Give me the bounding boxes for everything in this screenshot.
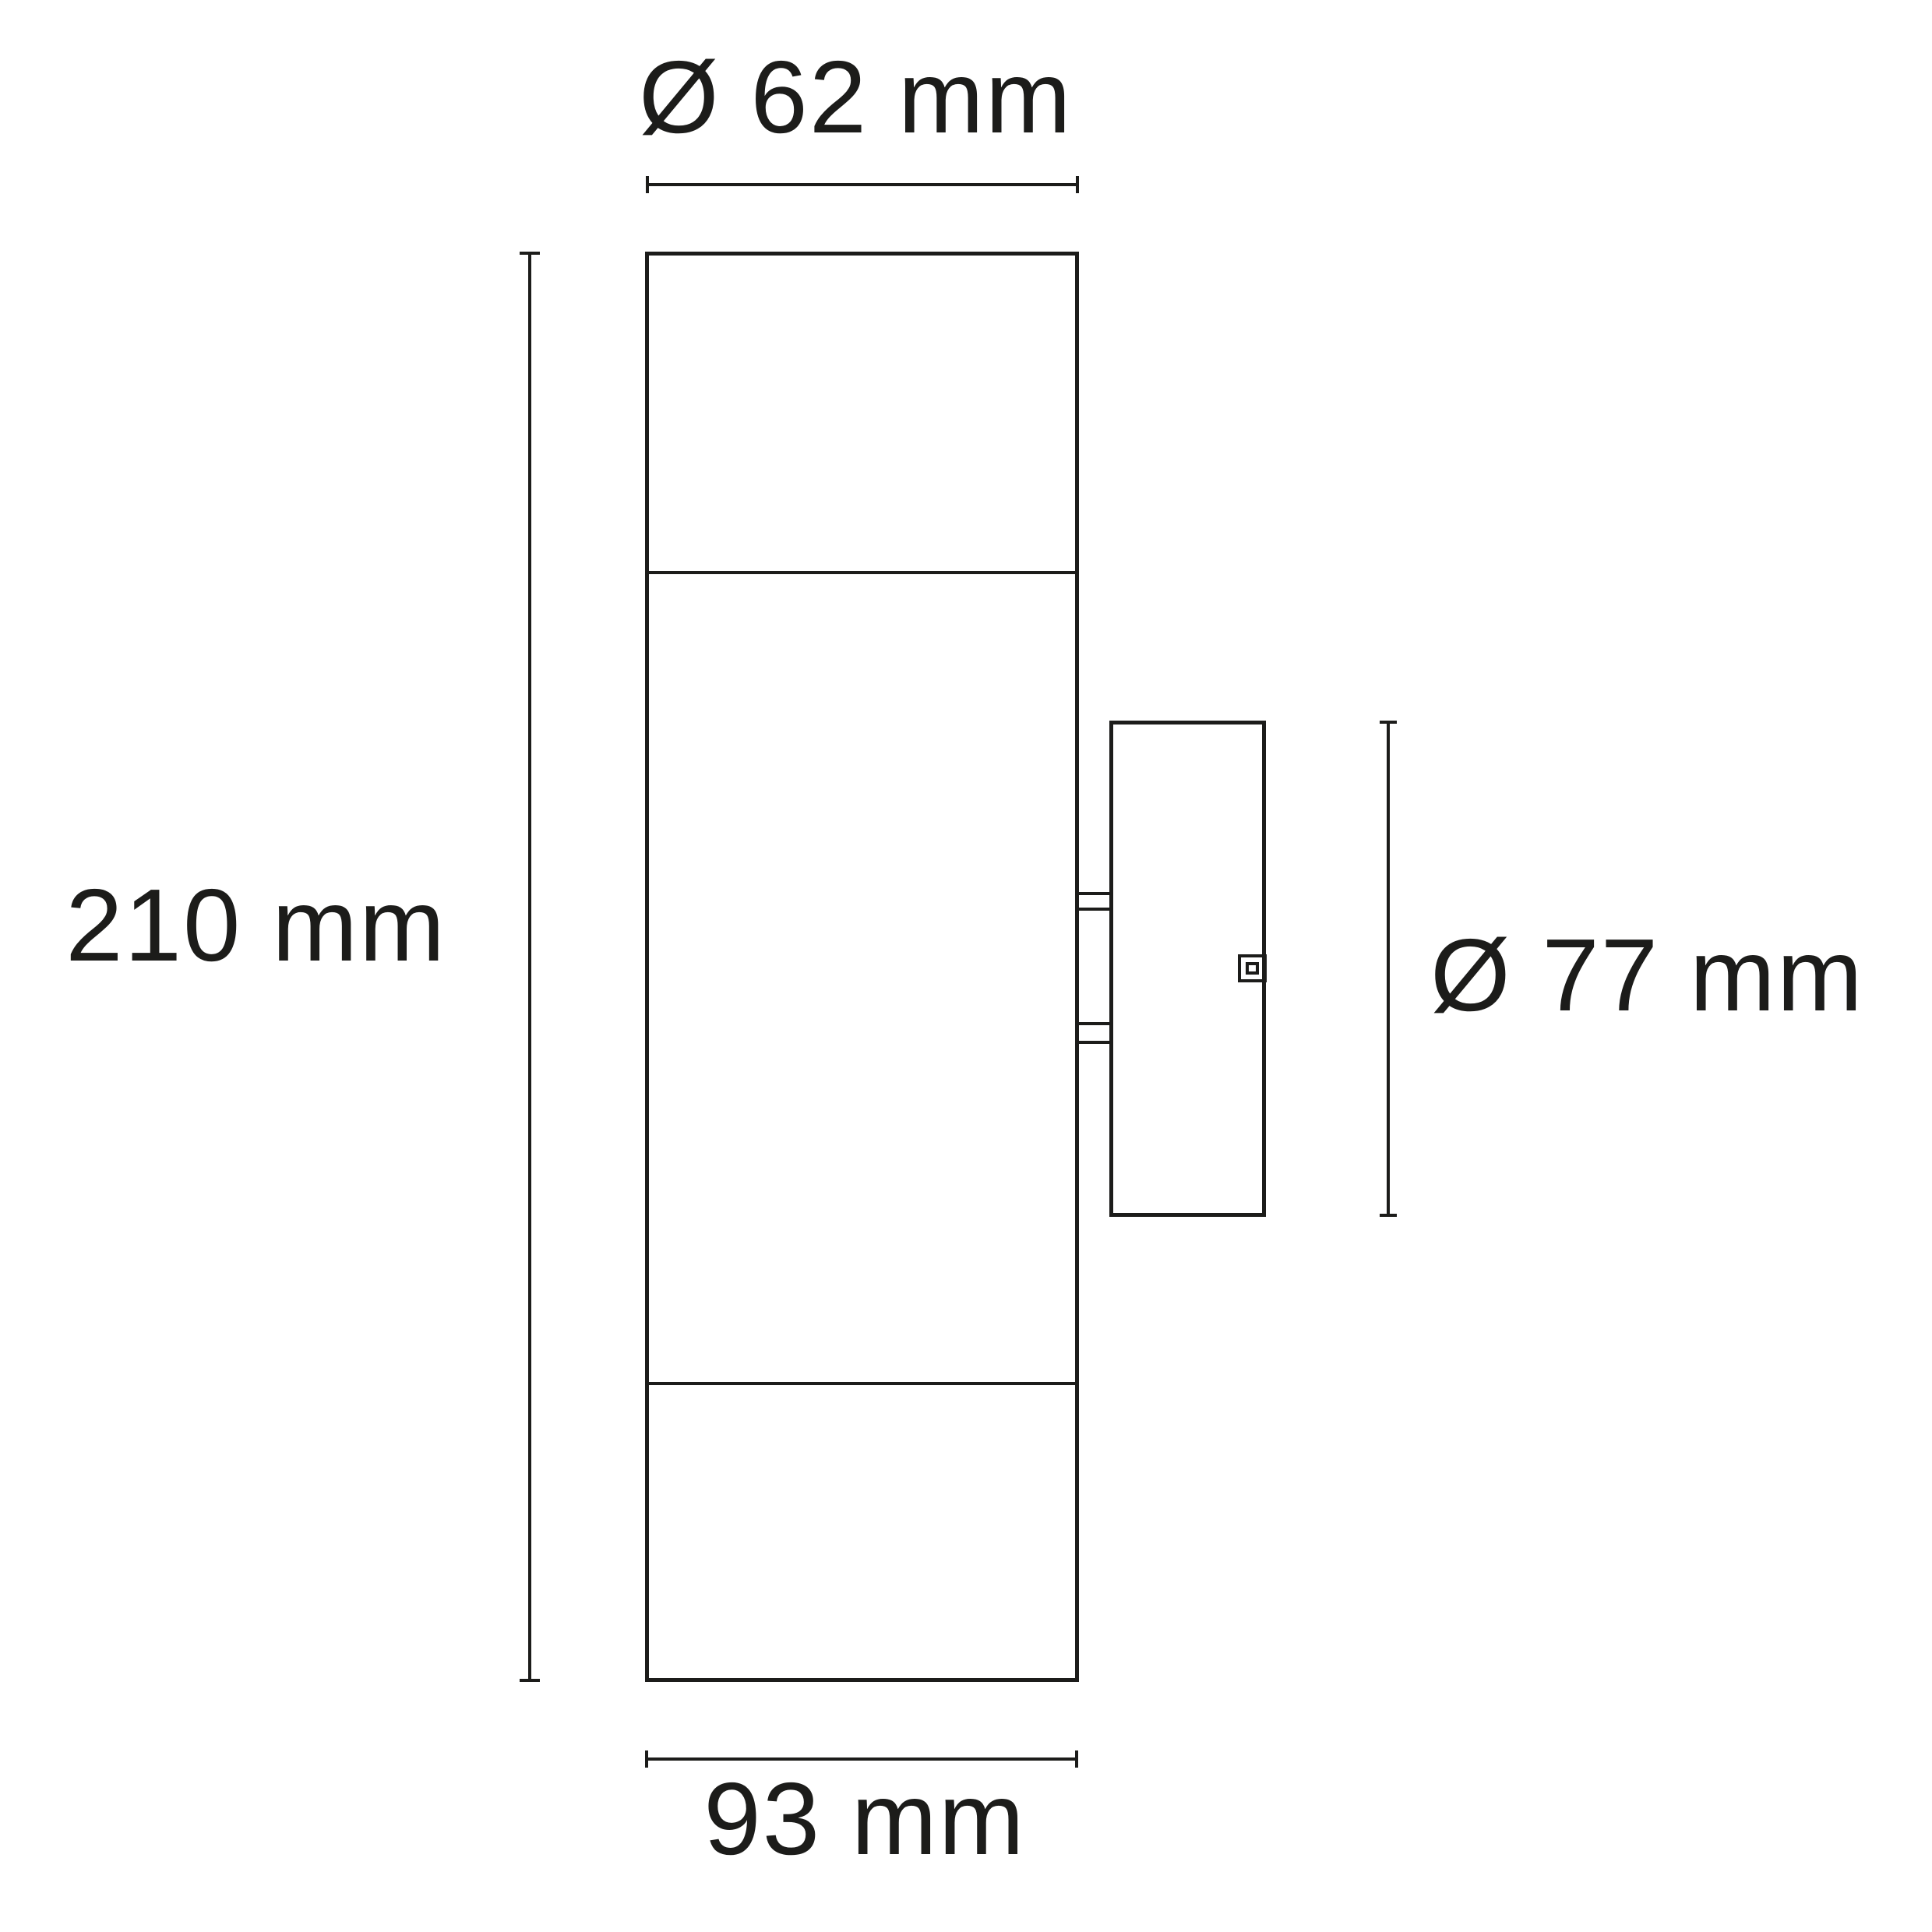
dimension-tick-right [1075,1750,1078,1768]
technical-drawing-canvas: Ø 62 mm 210 mm Ø 77 mm 93 mm [0,0,1932,1932]
dimension-tick-bottom [520,1679,540,1682]
dimension-tick-right [1076,176,1079,193]
dimension-bar [1387,721,1390,1217]
dimension-label-height: 210 mm [55,874,446,977]
fixture-section-divider-top [645,571,1079,574]
dimension-label-top-diameter: Ø 62 mm [639,46,1072,149]
dimension-line-backplate-diameter [1380,721,1397,1217]
fixture-section-divider-bottom [645,1382,1079,1385]
dimension-line-top-diameter [646,176,1079,193]
dimension-line-height [520,252,540,1682]
dimension-tick-bottom [1380,1214,1397,1217]
dimension-bar [528,252,531,1682]
mounting-bracket-tab-bottom [1079,1022,1112,1044]
mounting-bracket-tab-top [1079,892,1112,911]
dimension-bar [645,1757,1078,1761]
screw-detail-outer [1238,954,1267,982]
dimension-label-depth: 93 mm [649,1768,1081,1870]
screw-detail-inner [1246,962,1259,975]
dimension-label-backplate-diameter: Ø 77 mm [1430,924,1864,1027]
fixture-body-outline [645,252,1079,1682]
dimension-bar [646,183,1079,186]
